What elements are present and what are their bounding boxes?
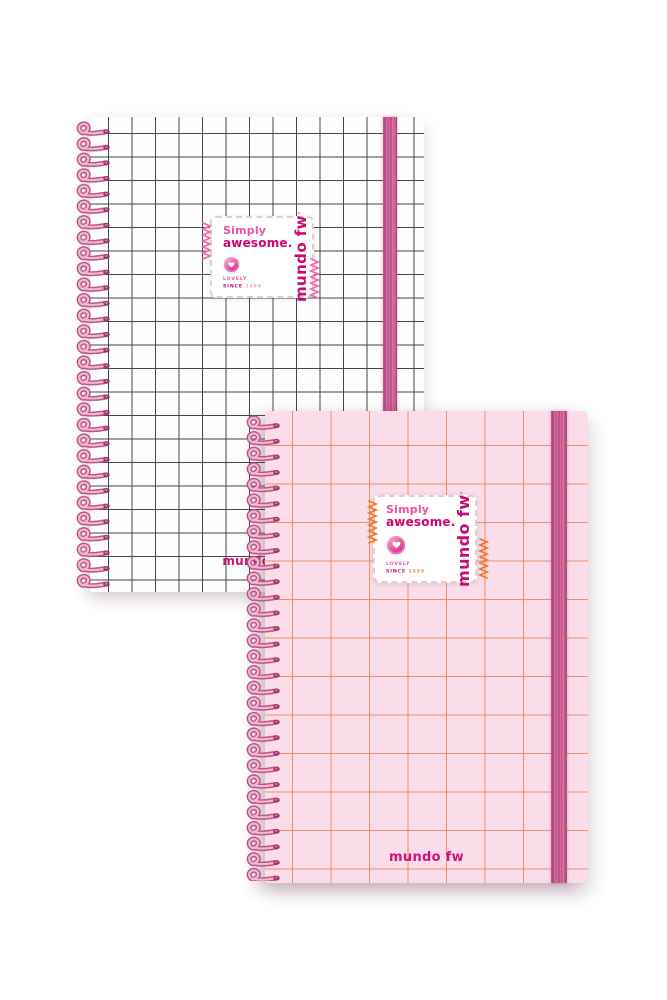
brand-wordmark: mundo fw: [454, 495, 473, 587]
spiral-binding: [246, 415, 284, 881]
label-tagline: LOVELY SINCE 1989: [223, 275, 262, 290]
brand-label: Simply awesome. LOVELY SINCE 1989 mundo …: [210, 216, 314, 298]
elastic-band: [551, 411, 567, 883]
product-photo: Simply awesome. LOVELY SINCE 1989 mundo …: [0, 0, 667, 1000]
label-since: SINCE: [223, 283, 243, 288]
heart-icon: [224, 257, 239, 272]
label-vertical-brand: mundo fw’: [292, 223, 310, 291]
label-since-year: 1989: [245, 283, 261, 288]
heart-glyph-icon: [228, 261, 235, 268]
label-lovely: LOVELY: [223, 275, 262, 282]
brand-wordmark: mundo fw: [292, 215, 310, 302]
label-lovely: LOVELY: [386, 560, 425, 567]
heart-icon: [387, 536, 405, 554]
label-vertical-brand: mundo fw’: [454, 502, 473, 576]
brand-logo: mundo fw: [265, 850, 588, 865]
zigzag-spring-icon: [367, 500, 378, 544]
zigzag-spring-icon: [478, 538, 489, 579]
notebook-pink: Simply awesome. LOVELY SINCE 1989 mundo …: [246, 411, 588, 891]
label-since: SINCE: [386, 568, 406, 573]
brand-label: Simply awesome. LOVELY SINCE 1989 mundo …: [373, 495, 477, 583]
zigzag-spring-icon: [201, 222, 212, 260]
zigzag-spring-icon: [309, 258, 320, 299]
spiral-binding: [76, 121, 114, 589]
notebook-pink-cover: Simply awesome. LOVELY SINCE 1989 mundo …: [265, 411, 588, 883]
brand-mark: ’: [460, 491, 467, 494]
heart-glyph-icon: [392, 540, 401, 549]
brand-mark: ’: [298, 212, 305, 215]
label-tagline: LOVELY SINCE 1989: [386, 560, 425, 575]
label-since-year: 1989: [408, 568, 424, 573]
